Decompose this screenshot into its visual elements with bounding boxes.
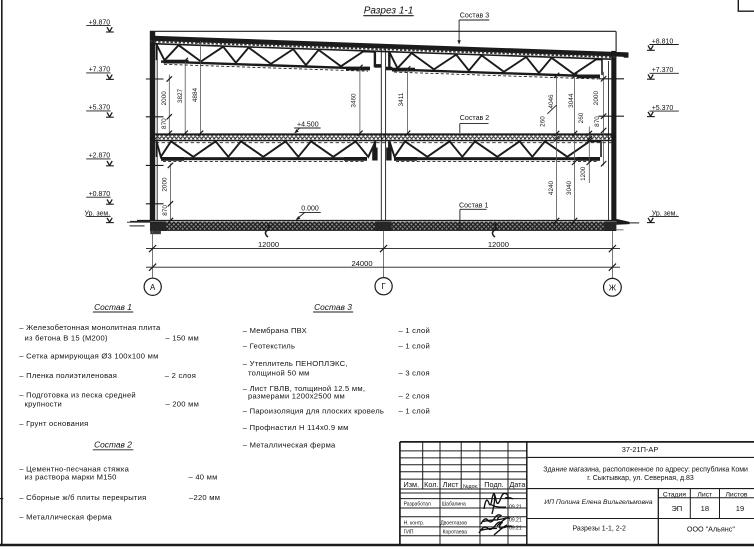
svg-text:12000: 12000: [258, 240, 279, 249]
svg-text:870: 870: [161, 118, 168, 129]
svg-text:– Железобетонная монолитная п: – Железобетонная монолитная плита: [19, 323, 161, 332]
svg-text:г. Сыктывкар, ул. Северная, д.: г. Сыктывкар, ул. Северная, д.83: [587, 475, 694, 482]
svg-text:Разработал: Разработал: [404, 501, 431, 507]
svg-text:Состав 1: Состав 1: [459, 201, 488, 209]
svg-text:Состав 3: Состав 3: [460, 12, 489, 20]
svg-text:– 200 мм: – 200 мм: [166, 400, 200, 409]
svg-text:Дата: Дата: [509, 480, 526, 489]
svg-text:870: 870: [162, 205, 169, 216]
svg-text:3827: 3827: [177, 88, 184, 103]
svg-text:Состав 1: Состав 1: [94, 302, 132, 312]
svg-text:Состав 3: Состав 3: [314, 302, 352, 312]
svg-text:из бетона В 15 (М200): из бетона В 15 (М200): [25, 333, 108, 342]
svg-text:4884: 4884: [192, 87, 199, 102]
svg-text:09.21: 09.21: [509, 504, 522, 510]
svg-text:2000: 2000: [593, 91, 600, 106]
svg-text:– Грунт основания: – Грунт основания: [19, 419, 88, 428]
svg-text:размерами 1200х2500 мм: размерами 1200х2500 мм: [248, 391, 345, 400]
svg-text:– 2 слоя: – 2 слоя: [165, 371, 196, 380]
svg-text:37-21П-АР: 37-21П-АР: [622, 445, 659, 454]
svg-text:260: 260: [578, 112, 585, 123]
svg-text:– 150 мм: – 150 мм: [165, 333, 199, 342]
svg-text:толщиной 50 мм: толщиной 50 мм: [248, 368, 310, 377]
svg-text:3040: 3040: [566, 180, 573, 195]
svg-text:– 3 слоя: – 3 слоя: [399, 368, 430, 377]
svg-text:из раствора марки М150: из раствора марки М150: [25, 473, 117, 482]
svg-text:– Утеплитель ПЕНОПЛЭКС,: – Утеплитель ПЕНОПЛЭКС,: [243, 359, 348, 368]
svg-text:– Металлическая ферма: – Металлическая ферма: [243, 441, 336, 450]
svg-text:– 2 слоя: – 2 слоя: [399, 391, 430, 400]
svg-text:Разрез 1-1: Разрез 1-1: [364, 5, 414, 16]
svg-text:24000: 24000: [351, 259, 372, 268]
svg-text:12000: 12000: [488, 240, 509, 249]
svg-text:Изм.: Изм.: [403, 480, 419, 489]
svg-text:3411: 3411: [398, 92, 405, 106]
svg-text:Состав 2: Состав 2: [94, 440, 132, 450]
svg-text:ИП Полина Елена Вильгельмовна: ИП Полина Елена Вильгельмовна: [544, 499, 652, 506]
svg-text:–220 мм: –220 мм: [189, 493, 220, 502]
svg-text:4046: 4046: [548, 94, 555, 109]
svg-text:– Сетка армирующая Ø3 100х100: – Сетка армирующая Ø3 100х100 мм: [19, 351, 158, 360]
svg-text:Кол.: Кол.: [424, 480, 438, 489]
svg-text:Стадия: Стадия: [663, 492, 686, 499]
svg-text:2000: 2000: [161, 91, 168, 106]
svg-text:260: 260: [539, 116, 546, 127]
svg-text:18: 18: [701, 504, 709, 513]
svg-text:– 1 слой: – 1 слой: [399, 326, 430, 335]
svg-text:Г: Г: [381, 282, 386, 291]
svg-text:Листов: Листов: [725, 492, 747, 499]
svg-text:Состав 2: Состав 2: [460, 114, 489, 122]
svg-text:– Профнастил Н 114х0.9 мм: – Профнастил Н 114х0.9 мм: [243, 423, 349, 432]
svg-text:Разрезы 1-1, 2-2: Разрезы 1-1, 2-2: [572, 526, 626, 533]
svg-text:0.000: 0.000: [301, 205, 319, 212]
svg-text:ГИП: ГИП: [404, 530, 414, 536]
svg-text:– Подготовка из песка средней: – Подготовка из песка средней: [19, 391, 136, 400]
svg-text:Лист: Лист: [697, 492, 712, 499]
svg-text:09.21: 09.21: [509, 517, 522, 523]
svg-text:ООО "Альянс": ООО "Альянс": [687, 524, 736, 533]
svg-text:– 1 слой: – 1 слой: [399, 341, 430, 350]
svg-text:– Сборные ж/б плиты перекрытия: – Сборные ж/б плиты перекрытия: [19, 493, 146, 502]
svg-text:4240: 4240: [548, 180, 555, 195]
svg-text:ЭП: ЭП: [671, 504, 682, 513]
svg-text:– Геотекстиль: – Геотекстиль: [243, 341, 295, 350]
svg-text:Подп.: Подп.: [484, 480, 503, 489]
svg-text:1200: 1200: [580, 166, 587, 181]
svg-text:– 1 слой: – 1 слой: [399, 406, 430, 415]
svg-text:крупности: крупности: [25, 400, 63, 409]
svg-text:Коротаева: Коротаева: [443, 530, 468, 536]
svg-text:2000: 2000: [161, 177, 168, 192]
svg-text:Ж: Ж: [609, 283, 617, 292]
svg-text:Шабалина: Шабалина: [442, 501, 466, 507]
svg-text:Лист: Лист: [443, 480, 460, 489]
svg-text:– Металлическая ферма: – Металлическая ферма: [19, 513, 112, 522]
svg-text:Двоеглазов: Двоеглазов: [440, 520, 467, 526]
svg-text:– Пароизоляция для плоских кро: – Пароизоляция для плоских кровель: [243, 406, 384, 415]
svg-text:– 40 мм: – 40 мм: [189, 473, 218, 482]
svg-text:3044: 3044: [568, 93, 575, 108]
svg-text:870: 870: [594, 116, 601, 127]
svg-text:– Мембрана ПВХ: – Мембрана ПВХ: [243, 326, 307, 335]
svg-text:– Пленка полиэтиленовая: – Пленка полиэтиленовая: [19, 371, 117, 380]
svg-text:3460: 3460: [351, 93, 358, 108]
svg-text:19: 19: [736, 504, 744, 513]
svg-text:Здание магазина, расположенное: Здание магазина, расположенное по адресу…: [543, 465, 748, 473]
svg-text:А: А: [150, 283, 156, 292]
svg-text:Н. контр.: Н. контр.: [404, 520, 425, 526]
svg-text:№док.: №док.: [463, 484, 479, 490]
